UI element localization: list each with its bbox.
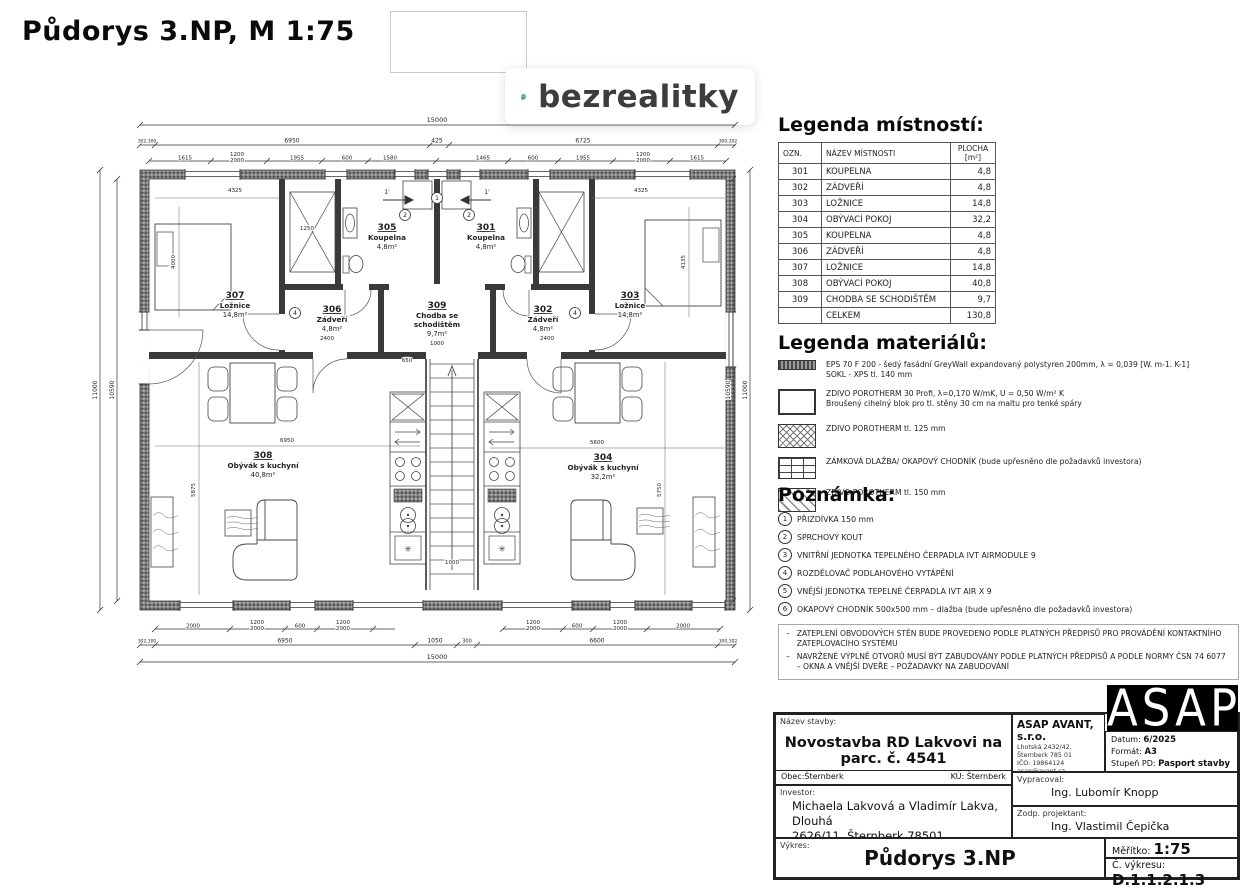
zodp: Ing. Vlastimil Čepička [1051,820,1237,833]
floor-plan: ✳✳1'1'15000302,30069504256725300,3021615… [85,112,765,672]
meritko-label: Měřítko: [1112,846,1151,857]
col-name: NÁZEV MÍSTNOSTI [822,143,951,164]
room-number: 309 [428,301,447,311]
notes-bullets: –ZATEPLENÍ OBVODOVÝCH STĚN BUDE PROVEDEN… [778,624,1239,680]
dim-interior: 4000 [171,255,177,269]
empty-frame [390,11,527,73]
note-text: ROZDĚLOVAČ PODLAHOVÉHO VYTÁPĚNÍ [797,569,954,578]
dim: 11000 [742,380,749,399]
material-swatch [778,360,816,370]
note-text: VNĚJŠÍ JEDNOTKA TEPELNÉ ČERPADLA IVT AIR… [797,587,992,596]
cell-nazev-stavby: Název stavby: Novostavba RD Lakvovi na p… [775,714,1012,785]
cell-cislo-vykresu: Č. výkresu: D.1.1.2.1.3 [1105,858,1238,878]
room-name: Chodba se [416,311,458,320]
room-area: 14,8m² [223,311,248,319]
dim: 600 [528,156,539,162]
legend-rooms-title: Legenda místností: [778,114,996,136]
room-area: 32,2m² [591,473,616,481]
room-number: 301 [477,223,496,233]
room-number: 305 [378,223,397,233]
dim-interior: 6950 [280,438,294,444]
plan-marker: 2 [403,212,407,219]
dim-interior: 2400 [540,336,554,342]
note-number: 6 [778,602,792,616]
legend-rooms-table: OZN. NÁZEV MÍSTNOSTI PLOCHA [m²] 301KOUP… [778,142,996,324]
nazev-label: Název stavby: [780,717,1011,726]
dim: 15000 [427,653,448,661]
cell-datum: Datum: 6/2025 Formát: A3 Stupeň PD: Pasp… [1105,731,1238,772]
room-number: 303 [621,291,640,301]
dim: 425 [431,138,443,145]
legend-room-row: 305KOUPELNA4,8 [779,228,996,244]
material-swatch [778,424,816,448]
dim: 300,302 [719,139,738,145]
note-text: VNITŘNÍ JEDNOTKA TEPELNÉHO ČERPADLA IVT … [797,551,1036,560]
room-name: Ložnice [220,301,251,310]
room-area: 4,8m² [476,243,496,251]
note-number: 5 [778,584,792,598]
dim-interior: 650 [402,358,413,364]
company-line: IČO: 19864124 [1017,760,1104,768]
dim-interior: 5750 [657,483,663,497]
datum-label: Datum: [1111,735,1141,744]
material-text: ZÁMKOVÁ DLAŽBA/ OKAPOVÝ CHODNÍK (bude up… [826,457,1198,467]
plan-marker: 4 [573,310,577,317]
legend-room-row: 301KOUPELNA4,8 [779,164,996,180]
note-item: 3 VNITŘNÍ JEDNOTKA TEPELNÉHO ČERPADLA IV… [778,548,1239,562]
plan-text: ✳ [404,545,412,555]
dim: 6725 [575,138,590,145]
cell-investor: Investor: Michaela Lakvová a Vladimír La… [775,785,1012,838]
room-name: Koupelna [368,233,406,242]
material-item: ZDIVO POROTHERM 30 Profi, λ=0,170 W/mK, … [778,389,1198,415]
legend-room-row: 308OBÝVACÍ POKOJ40,8 [779,276,996,292]
plan-text: ✳ [498,545,506,555]
asap-logo-text: ASAP [1107,683,1238,735]
dim-interior: 4325 [634,188,648,194]
note-number: 2 [778,530,792,544]
cislo-label: Č. výkresu: [1112,860,1165,871]
material-text: ZDIVO POROTHERM 30 Profi, λ=0,170 W/mK, … [826,389,1198,409]
room-area: 9,7m² [427,330,447,338]
note-item: 6 OKAPOVÝ CHODNÍK 500x500 mm – dlažba (b… [778,602,1239,616]
cell-zodp: Zodp. projektant: Ing. Vlastimil Čepička [1012,806,1238,838]
col-area: PLOCHA [m²] [951,143,996,164]
legend-room-row: 304OBÝVACÍ POKOJ32,2 [779,212,996,228]
note-item: 1 PŘIZDÍVKA 150 mm [778,512,1239,526]
note-bullet: –NAVRŽENÉ VÝPLNĚ OTVORŮ MUSÍ BÝT ZABUDOV… [786,652,1231,672]
material-swatch [778,457,816,479]
dim-interior: 1250 [300,226,314,232]
dim: 300 [462,639,472,645]
dim: 302,300 [138,639,157,645]
dim: 2000 [526,626,540,632]
arrow-label: 1' [484,189,490,196]
sheet: { "page": { "title": "Půdorys 3.NP, M 1:… [0,0,1260,877]
dim-interior: 5600 [590,440,604,446]
format: A3 [1144,747,1157,757]
notes-title: Poznámka: [778,484,1239,506]
plan-marker: 2 [467,212,471,219]
legend-room-row: 309CHODBA SE SCHODIŠTĚM9,7 [779,292,996,308]
room-area: 4,8m² [322,325,342,333]
dim: 6950 [284,138,299,145]
room-name: Obývák s kuchyní [227,461,299,470]
dim: 600 [342,156,353,162]
legend-rooms: Legenda místností: OZN. NÁZEV MÍSTNOSTI … [778,114,996,324]
ku: KÚ: Šternberk [951,772,1006,783]
plan-marker: 1 [435,195,439,202]
room-number: 308 [254,451,273,461]
material-swatch [778,389,816,415]
room-name: Zádveří [528,315,559,324]
dim: 2000 [636,158,650,164]
stupen-label: Stupeň PD: [1111,759,1156,768]
dim-interior: 1000 [445,560,459,566]
bezrealitky-logo-text: bezrealitky [538,79,739,115]
floor-plan-svg: ✳✳1'1'15000302,30069504256725300,3021615… [85,112,765,672]
dim: 2000 [336,626,350,632]
title-block: ASAP Název stavby: Novostavba RD Lakvovi… [773,712,1240,880]
material-text: EPS 70 F 200 - šedý fasádní GreyWall exp… [826,360,1198,380]
cell-meritko: Měřítko: 1:75 [1105,838,1238,858]
material-text: ZDIVO POROTHERM tl. 125 mm [826,424,1198,434]
meritko: 1:75 [1154,840,1191,858]
room-area: 4,8m² [377,243,397,251]
material-item: ZÁMKOVÁ DLAŽBA/ OKAPOVÝ CHODNÍK (bude up… [778,457,1198,479]
note-item: 5 VNĚJŠÍ JEDNOTKA TEPELNÉ ČERPADLA IVT A… [778,584,1239,598]
room-number: 302 [534,305,553,315]
legend-room-row: 303LOŽNICE14,8 [779,196,996,212]
material-item: ZDIVO POROTHERM tl. 125 mm [778,424,1198,448]
room-area: 40,8m² [251,471,276,479]
room-area: 14,8m² [618,311,643,319]
dim: 300,302 [719,639,738,645]
dim: 6600 [589,638,604,645]
legend-room-row: CELKEM130,8 [779,308,996,324]
cell-vykres: Výkres: Půdorys 3.NP [775,838,1105,878]
format-label: Formát: [1111,747,1142,756]
dim-interior: 1000 [430,341,444,347]
dim: 10590 [109,380,116,399]
vykres: Půdorys 3.NP [776,846,1104,870]
investor-label: Investor: [780,788,1011,797]
dim: 2000 [613,626,627,632]
material-item: EPS 70 F 200 - šedý fasádní GreyWall exp… [778,360,1198,380]
notes: Poznámka: 1 PŘIZDÍVKA 150 mm2 SPRCHOVÝ K… [778,484,1239,680]
legend-materials-title: Legenda materiálů: [778,332,1198,354]
room-name: Obývák s kuchyní [567,463,639,472]
datum: 6/2025 [1143,735,1176,745]
vypracoval-label: Vypracoval: [1017,775,1237,784]
dim: 11000 [92,380,99,399]
dim: 2000 [676,624,690,630]
arrow-label: 1' [384,189,390,196]
room-name: Koupelna [467,233,505,242]
investor-line1: Michaela Lakvová a Vladimír Lakva, Dlouh… [792,799,1011,829]
room-number: 304 [594,453,613,463]
dim: 1050 [427,638,442,645]
dim-interior: 5875 [191,483,197,497]
dim: 1615 [178,156,192,162]
note-number: 3 [778,548,792,562]
nazev-stavby: Novostavba RD Lakvovi na parc. č. 4541 [776,735,1011,767]
legend-room-row: 307LOŽNICE14,8 [779,260,996,276]
cislo: D.1.1.2.1.3 [1112,871,1205,889]
room-name: schodištěm [414,320,460,329]
room-number: 306 [323,305,342,315]
note-text: OKAPOVÝ CHODNÍK 500x500 mm – dlažba (bud… [797,605,1132,614]
note-number: 1 [778,512,792,526]
dim: 2000 [230,158,244,164]
plan-marker: 4 [293,310,297,317]
obec: Obec:Šternberk [781,772,844,783]
dim: 2000 [250,626,264,632]
page-title: Půdorys 3.NP, M 1:75 [22,16,355,47]
dim: 15000 [427,116,448,124]
note-item: 4 ROZDĚLOVAČ PODLAHOVÉHO VYTÁPĚNÍ [778,566,1239,580]
dim: 600 [295,624,306,630]
zodp-label: Zodp. projektant: [1017,809,1237,818]
dim: 1580 [383,156,397,162]
stupen: Pasport stavby [1158,759,1230,769]
note-item: 2 SPRCHOVÝ KOUT [778,530,1239,544]
cell-vypracoval: Vypracoval: Ing. Lubomír Knopp [1012,772,1238,806]
company-line: Lhotská 2432/42, Šternberk 785 01 [1017,744,1104,760]
dim: 1955 [290,156,304,162]
room-area: 4,8m² [533,325,553,333]
dim: 302,300 [138,139,157,145]
dim: 2000 [186,624,200,630]
note-number: 4 [778,566,792,580]
note-bullet: –ZATEPLENÍ OBVODOVÝCH STĚN BUDE PROVEDEN… [786,629,1231,649]
dim: 10590 [725,380,732,399]
dim: 1465 [476,156,490,162]
dim-interior: 4325 [228,188,242,194]
company-name: ASAP AVANT, s.r.o. [1017,719,1104,743]
dim-interior: 4135 [681,255,687,269]
dim: 6950 [277,638,292,645]
vypracoval: Ing. Lubomír Knopp [1051,786,1237,799]
room-name: Zádveří [317,315,348,324]
legend-room-row: 302ZÁDVEŘÍ4,8 [779,180,996,196]
room-name: Ložnice [615,301,646,310]
dim-interior: 2400 [320,336,334,342]
room-number: 307 [226,291,245,301]
dim: 1615 [690,156,704,162]
legend-room-row: 306ZÁDVEŘÍ4,8 [779,244,996,260]
dim: 1955 [576,156,590,162]
note-text: SPRCHOVÝ KOUT [797,533,863,542]
note-text: PŘIZDÍVKA 150 mm [797,515,874,524]
dim: 600 [572,624,583,630]
col-ozn: OZN. [779,143,822,164]
cell-company: ASAP AVANT, s.r.o. Lhotská 2432/42, Šter… [1012,714,1105,772]
